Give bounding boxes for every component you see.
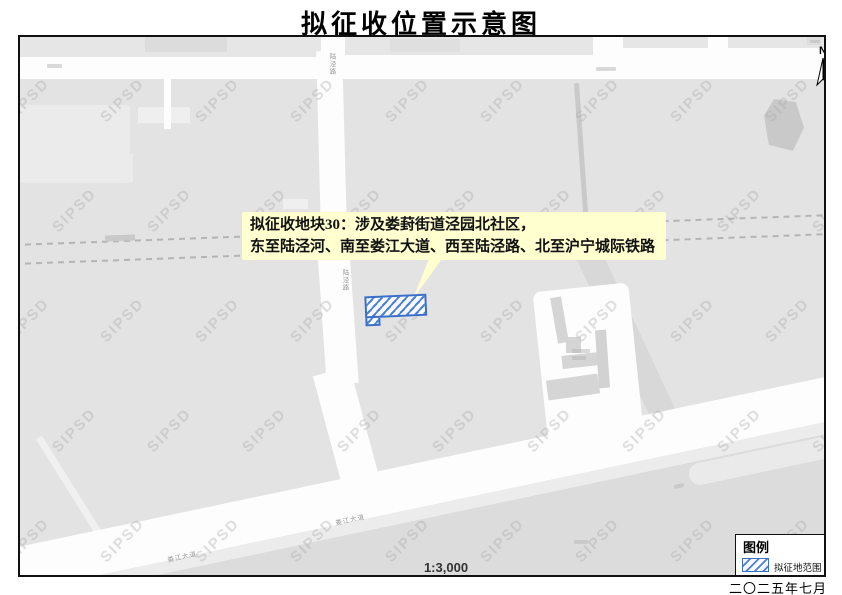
road-label-lujing-mid: 陆泾路	[339, 269, 349, 292]
legend-title: 图例	[743, 537, 769, 556]
map-date: 二〇二五年七月	[729, 578, 827, 595]
legend-hatch-swatch	[742, 558, 769, 572]
callout-line1: 拟征收地块30：涉及娄葑街道泾园北社区，	[250, 214, 658, 236]
north-arrow: N	[810, 45, 826, 87]
illegible-place-label	[572, 349, 590, 353]
illegible-road-label	[810, 40, 820, 43]
building	[145, 37, 227, 52]
illegible-road-label	[574, 540, 588, 544]
north-label: N	[810, 45, 826, 57]
alley-gap	[164, 79, 171, 129]
building	[390, 39, 460, 52]
road-label-lujing-north: 陆泾路	[326, 53, 336, 76]
legend-box: 图例 拟征地范围	[735, 534, 826, 577]
north-arrow-icon	[814, 57, 826, 87]
legend-item-label: 拟征地范围	[774, 560, 822, 574]
map-block-top-right1	[623, 37, 708, 48]
building	[283, 199, 308, 209]
parcel-callout: 拟征收地块30：涉及娄葑街道泾园北社区， 东至陆泾河、南至娄江大道、西至陆泾路、…	[242, 212, 666, 260]
illegible-road-label	[596, 67, 616, 71]
sub-parcel	[20, 154, 133, 182]
callout-line2: 东至陆泾河、南至娄江大道、西至陆泾路、北至沪宁城际铁路	[250, 236, 658, 258]
illegible-place-label	[572, 356, 586, 360]
page: 拟征收位置示意图	[0, 0, 842, 595]
scale-text: 1:3,000	[386, 560, 506, 575]
acquisition-parcel	[364, 294, 429, 329]
map-canvas: SIPSDSIPSDSIPSDSIPSDSIPSDSIPSDSIPSDSIPSD…	[18, 35, 826, 577]
illegible-road-label	[47, 64, 62, 68]
map-block-top-mid	[345, 37, 593, 55]
parcel-main	[364, 294, 427, 319]
railway-structure	[105, 234, 135, 241]
